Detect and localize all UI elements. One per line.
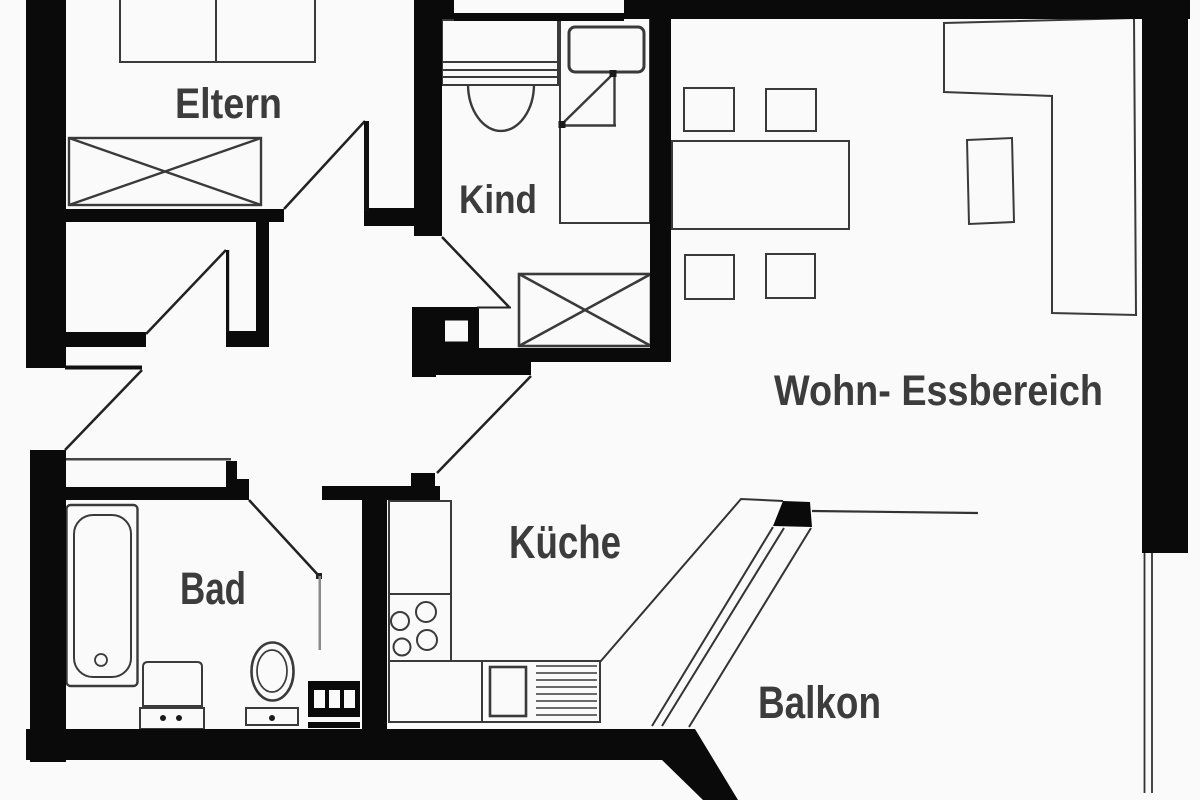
svg-text:Wohn- Essbereich: Wohn- Essbereich <box>774 368 1103 415</box>
svg-text:Balkon: Balkon <box>758 677 881 728</box>
svg-text:Küche: Küche <box>509 516 621 568</box>
svg-text:Eltern: Eltern <box>175 81 282 128</box>
svg-text:Bad: Bad <box>180 563 246 614</box>
svg-text:Kind: Kind <box>459 178 537 222</box>
